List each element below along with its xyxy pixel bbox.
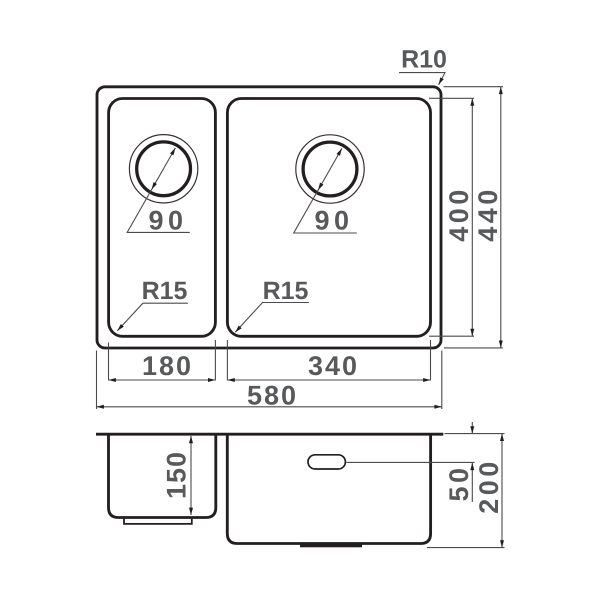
- svg-text:580: 580: [247, 381, 298, 411]
- svg-text:400: 400: [444, 186, 474, 242]
- svg-text:R15: R15: [263, 277, 309, 305]
- svg-text:R15: R15: [142, 277, 188, 305]
- svg-text:440: 440: [473, 186, 503, 242]
- svg-text:50: 50: [444, 464, 474, 501]
- svg-text:180: 180: [142, 351, 193, 381]
- svg-text:200: 200: [474, 458, 504, 514]
- svg-text:90: 90: [148, 206, 187, 236]
- svg-text:90: 90: [314, 206, 353, 236]
- svg-text:340: 340: [308, 351, 359, 381]
- svg-text:150: 150: [162, 451, 192, 499]
- svg-text:R10: R10: [401, 46, 447, 74]
